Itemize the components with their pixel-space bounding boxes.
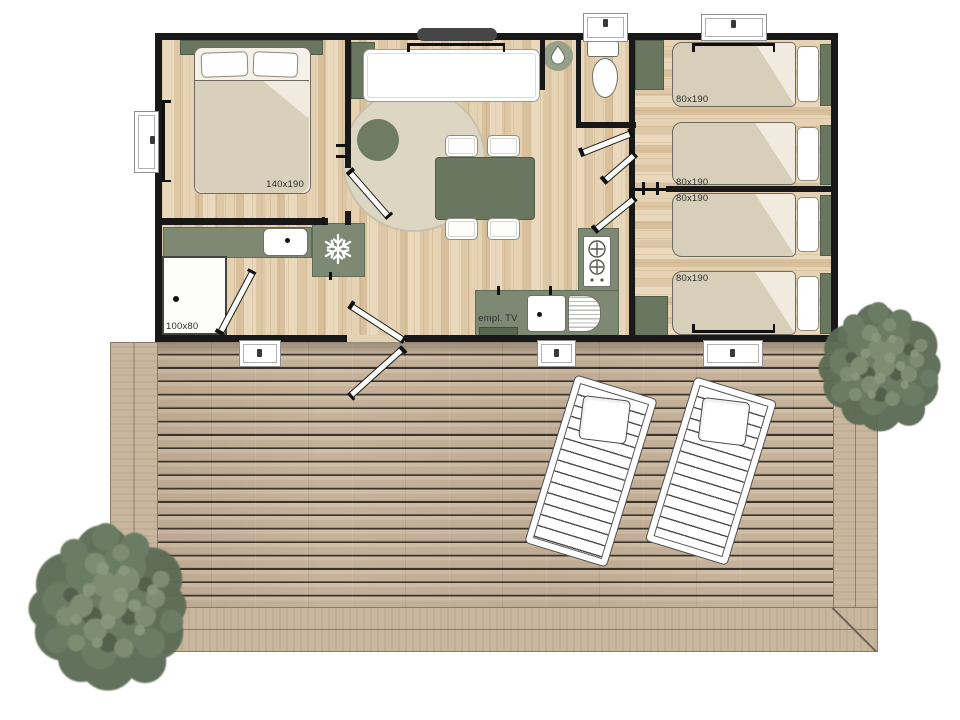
window-indicator	[162, 100, 165, 182]
bed-dimension-label: 80x190	[676, 178, 708, 188]
pillow	[797, 276, 819, 331]
door-latch	[336, 155, 348, 158]
window-indicator	[407, 43, 505, 46]
window-handle-icon	[731, 20, 736, 28]
lounger-pillow	[578, 395, 631, 445]
wall	[345, 40, 351, 168]
bed-dimension-label: 80x190	[676, 95, 708, 105]
window	[239, 340, 281, 367]
door-latch	[656, 182, 659, 195]
lounger-pillow	[697, 397, 750, 447]
wall	[540, 40, 545, 90]
deck-border-bottom	[110, 607, 878, 652]
window-handle-icon	[603, 19, 608, 27]
window	[134, 111, 159, 173]
window	[583, 13, 628, 42]
door-latch	[642, 182, 645, 195]
wall	[576, 40, 581, 128]
window	[703, 340, 763, 367]
bed-dimension-label: 80x190	[676, 274, 708, 284]
deck-border-right	[833, 342, 878, 608]
window	[537, 340, 576, 367]
window-handle-icon	[150, 136, 155, 144]
hinge-mark	[329, 272, 332, 280]
hinge-mark	[549, 286, 552, 295]
wall	[576, 122, 636, 128]
wall	[162, 218, 328, 225]
hinge-mark	[497, 286, 500, 295]
faucet-dot	[537, 312, 542, 317]
window-indicator	[692, 43, 775, 46]
window-handle-icon	[554, 349, 559, 357]
window-handle-icon	[257, 349, 262, 357]
deck-border-left	[110, 342, 158, 608]
pillow	[797, 127, 819, 181]
tv-label: empl. TV	[473, 314, 523, 324]
hinge-mark	[322, 217, 325, 225]
draining-board	[568, 295, 601, 332]
door-latch	[336, 144, 348, 147]
kitchen-sink	[527, 295, 566, 332]
floor-plan: 140x190 100x80	[0, 0, 960, 720]
window	[701, 14, 767, 41]
pillow	[797, 46, 819, 102]
window-handle-icon	[730, 349, 735, 357]
window-indicator	[692, 330, 775, 333]
pillow	[797, 197, 819, 252]
roof-window-bar	[417, 28, 497, 41]
wall-bedroom-divider-line	[631, 188, 668, 191]
wall	[345, 211, 351, 225]
bed-dimension-label: 80x190	[676, 194, 708, 204]
